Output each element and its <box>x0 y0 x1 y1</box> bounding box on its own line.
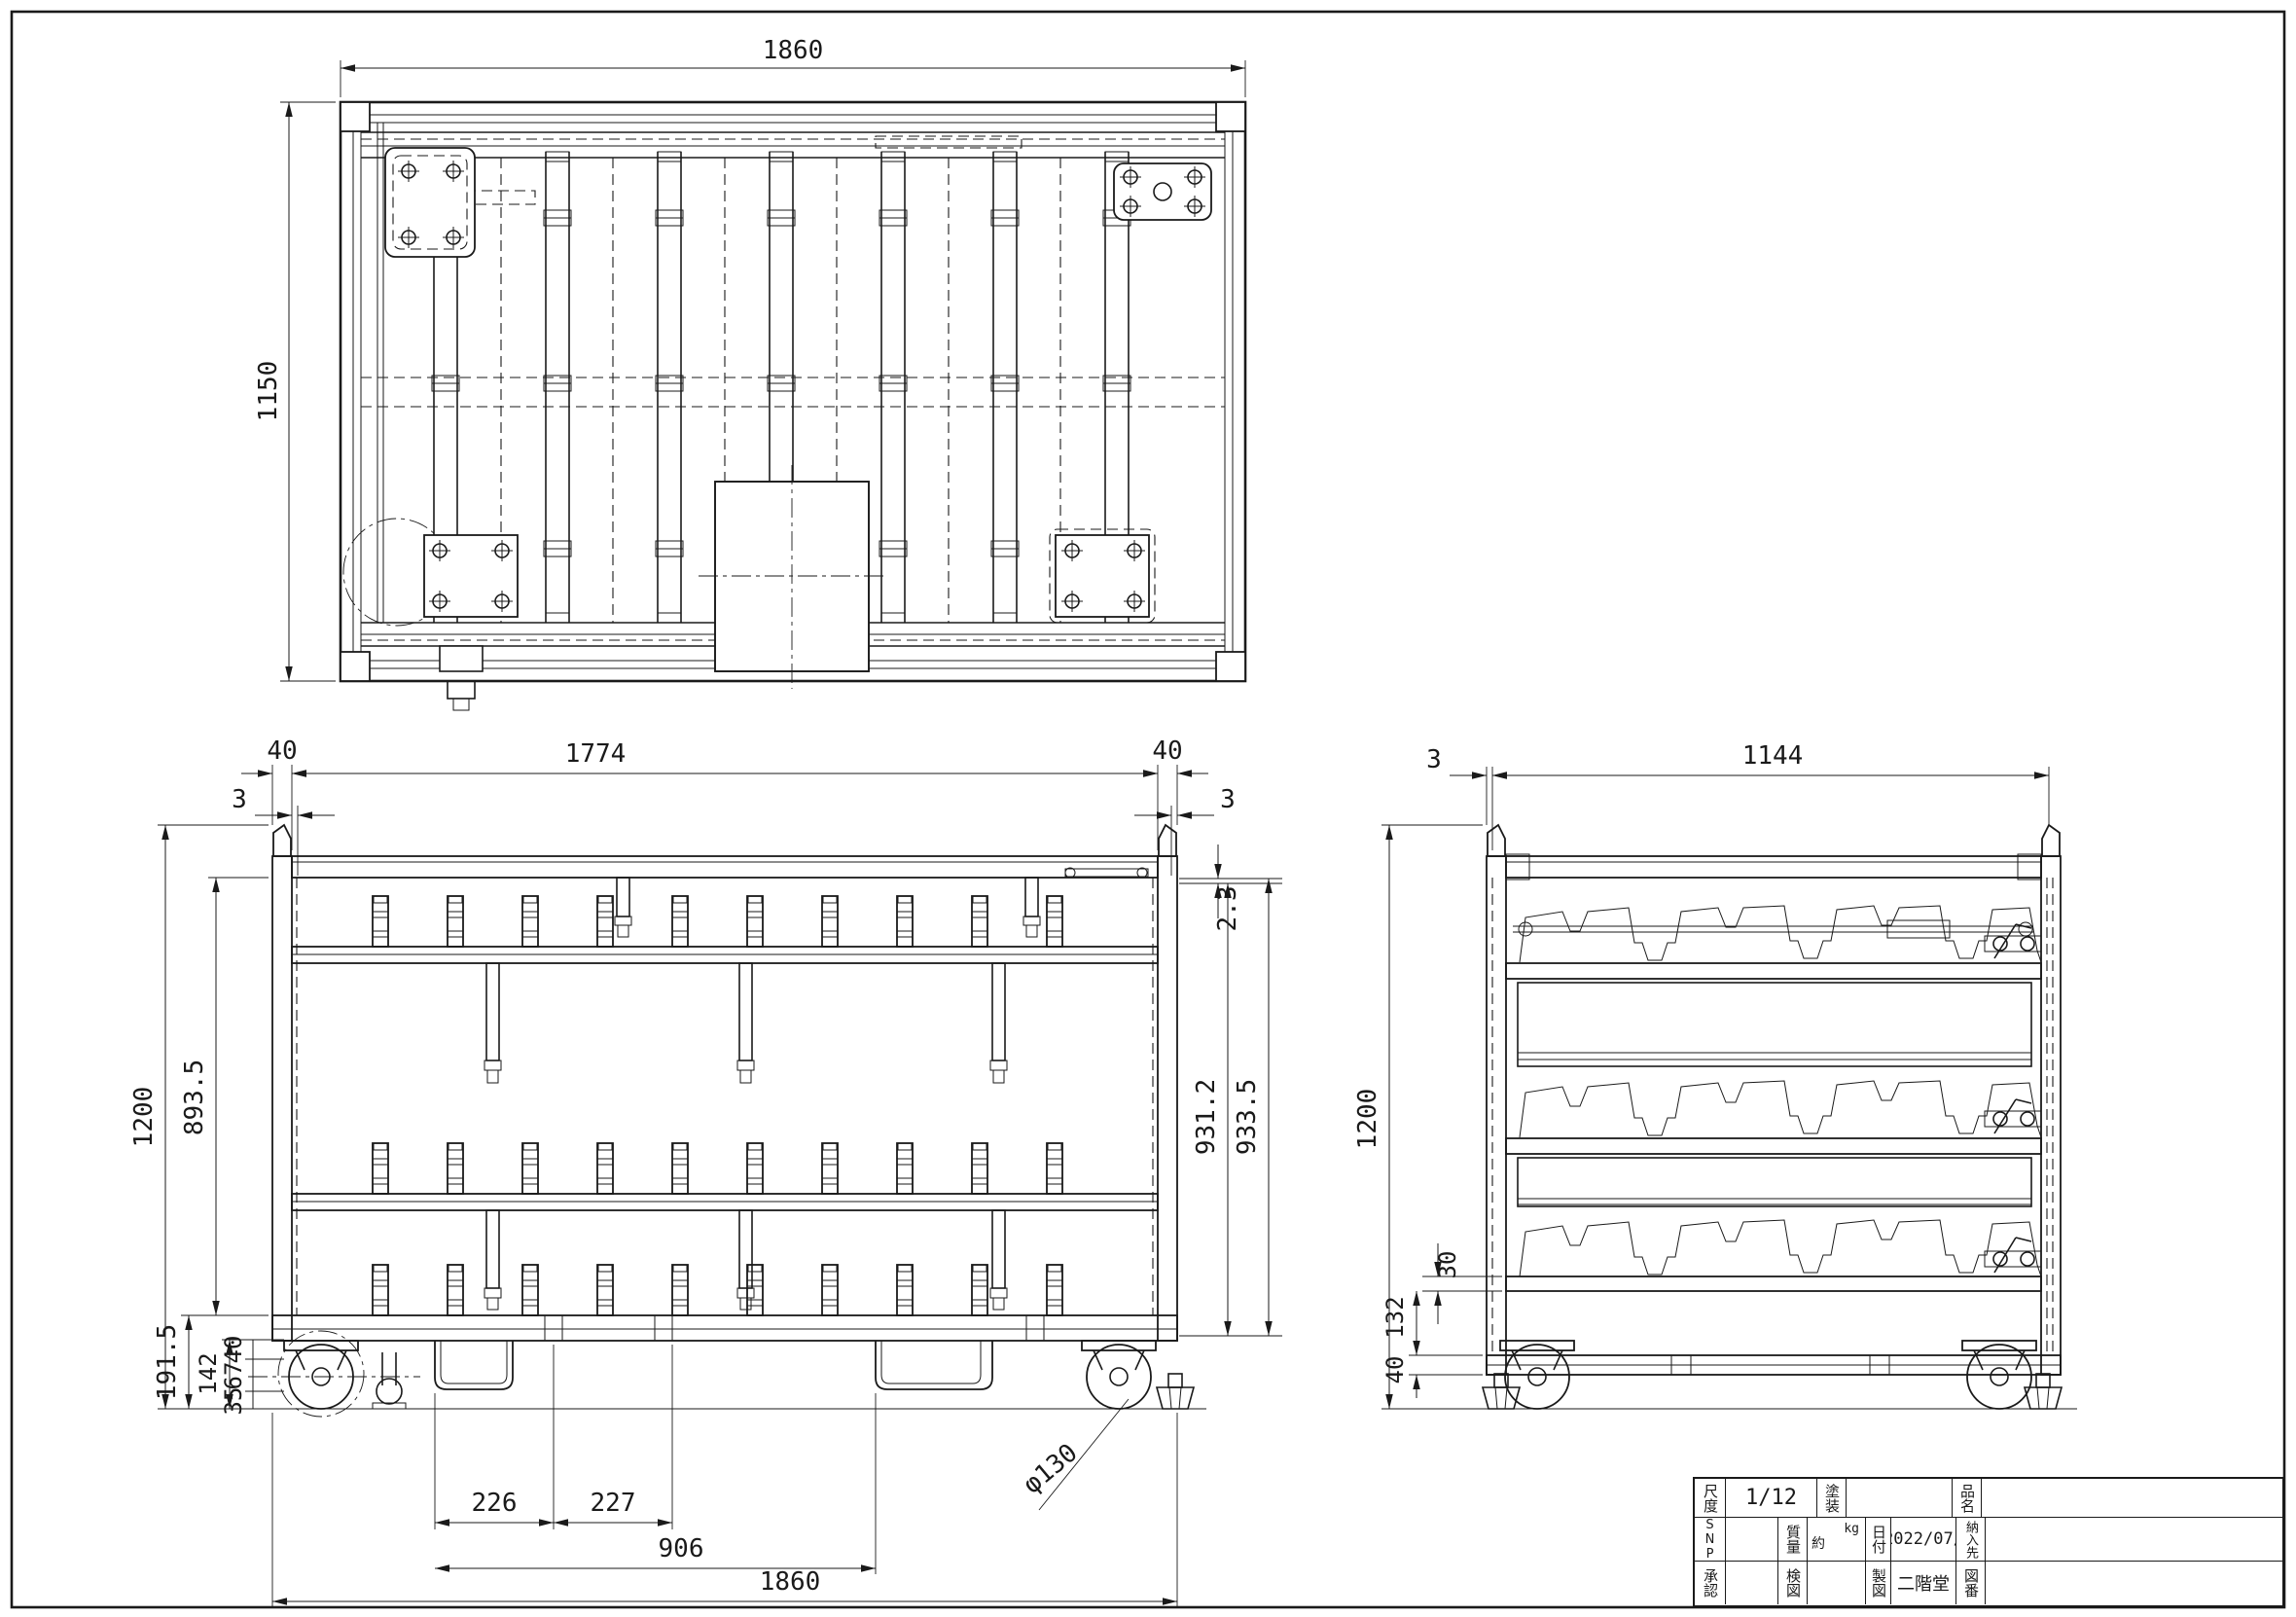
dim-side-wall: 3 <box>1426 745 1529 850</box>
dim-text: 1150 <box>254 361 283 422</box>
approval-label: 承認 <box>1695 1562 1726 1604</box>
draft-label: 製図 <box>1866 1562 1891 1604</box>
title-block-row-3: 承認 検図 製図 二階堂 図番 <box>1695 1562 2282 1604</box>
dim-text: 3 <box>1220 785 1236 814</box>
title-block-row-2: SNP 質量 約 kg 日付 2022/07/ 納入先 <box>1695 1518 2282 1562</box>
dim-side-under-clearance: 132 <box>1381 1291 1483 1355</box>
dim-text: 40 <box>1381 1356 1409 1384</box>
scale-value: 1/12 <box>1726 1479 1817 1518</box>
draft-value: 二階堂 <box>1891 1562 1956 1604</box>
dim-text: 142 <box>195 1352 222 1394</box>
dim-text: 1860 <box>760 1567 821 1597</box>
dim-front-inner-width: 1774 <box>292 739 1158 850</box>
dim-front-pitch-left: 226 <box>435 1345 554 1529</box>
latch-bracket-3 <box>1985 1238 2041 1273</box>
dim-front-post-left: 40 <box>241 737 323 850</box>
customer-label: 納入先 <box>1956 1518 1986 1562</box>
approval-value <box>1726 1562 1778 1604</box>
caster-plate-top-left <box>385 148 475 257</box>
dim-text: 3 <box>1426 745 1442 774</box>
dim-front-top-gap: 2.3 <box>1179 844 1282 931</box>
product-label: 品名 <box>1953 1479 1982 1518</box>
dim-text: 226 <box>472 1489 518 1518</box>
fork-pocket-left <box>435 1341 513 1389</box>
dim-text: 191.5 <box>153 1324 182 1400</box>
dim-top-height: 1150 <box>254 102 336 681</box>
dim-front-post-right: 40 <box>1127 737 1208 825</box>
drawing-no-label: 図番 <box>1956 1562 1986 1604</box>
drawing-canvas: 1860 1150 <box>0 0 2296 1617</box>
drawing-no-value <box>1986 1562 2282 1604</box>
title-block: 尺度 1/12 塗装 品名 SNP 質量 約 kg 日付 2022/07/ 納入… <box>1693 1477 2284 1607</box>
dim-text: 906 <box>659 1534 704 1563</box>
dim-text: 1144 <box>1742 741 1804 771</box>
dim-side-width: 1144 <box>1492 741 2049 825</box>
dim-text: 132 <box>1381 1296 1409 1338</box>
dim-text: 1860 <box>763 36 824 65</box>
dim-text: φ130 <box>1018 1438 1083 1499</box>
latch-bracket-2 <box>1985 1099 2041 1133</box>
caster-plate-bottom-right <box>1050 529 1155 623</box>
dim-text: 40 <box>1152 737 1182 766</box>
dim-side-overall-height: 1200 <box>1353 825 1483 1409</box>
paint-value <box>1847 1479 1953 1518</box>
mass-approx: 約 <box>1812 1533 1825 1553</box>
paint-label: 塗装 <box>1817 1479 1847 1518</box>
dim-side-rail-height: 30 <box>1422 1243 1502 1324</box>
dim-text: 67 <box>220 1362 247 1390</box>
dim-front-segments: 40 67 35 <box>220 1336 284 1416</box>
dim-text: 3 <box>232 785 247 814</box>
check-label: 検図 <box>1778 1562 1808 1604</box>
dim-text: 227 <box>591 1489 636 1518</box>
foot-side-right <box>2025 1374 2062 1409</box>
dim-text: 1200 <box>1353 1089 1382 1150</box>
dim-top-width: 1860 <box>341 36 1245 97</box>
snp-label: SNP <box>1695 1518 1726 1562</box>
dim-text: 893.5 <box>180 1060 209 1135</box>
mass-value: 約 kg <box>1808 1518 1866 1562</box>
title-block-row-1: 尺度 1/12 塗装 品名 <box>1695 1479 2282 1518</box>
dim-text: 30 <box>1434 1251 1461 1279</box>
product-value <box>1982 1479 2282 1518</box>
dim-front-body-height: 931.2 <box>1179 883 1282 1336</box>
check-value <box>1808 1562 1866 1604</box>
dim-front-body-height-outer: 933.5 <box>1233 879 1269 1336</box>
dim-text: 1200 <box>129 1087 159 1148</box>
fork-pocket-right <box>876 1341 992 1389</box>
dim-text: 933.5 <box>1233 1079 1262 1155</box>
snp-value <box>1726 1518 1778 1562</box>
dim-front-inner-height: 893.5 <box>180 878 269 1315</box>
foot-side-left <box>1483 1374 1520 1409</box>
checker-plate <box>699 465 885 689</box>
dim-text: 1774 <box>565 739 627 769</box>
mass-label: 質量 <box>1778 1518 1808 1562</box>
dim-front-pitch-right: 227 <box>554 1345 672 1529</box>
caster-plate-top-right <box>1114 163 1211 220</box>
dim-front-overall-width: 1860 <box>272 1413 1177 1607</box>
front-view: 40 1774 40 3 3 1200 <box>129 737 1282 1607</box>
side-view: 3 1144 1200 30 132 40 <box>1353 741 2077 1409</box>
foot-front-right <box>1157 1374 1194 1409</box>
date-value: 2022/07/ <box>1891 1518 1956 1562</box>
dim-text: 35 <box>220 1387 247 1416</box>
dim-front-pocket-span: 906 <box>435 1393 876 1574</box>
date-label: 日付 <box>1866 1518 1891 1562</box>
scale-label: 尺度 <box>1695 1479 1726 1518</box>
dim-side-frame-height: 40 <box>1381 1356 1483 1398</box>
drawing-sheet: 1860 1150 <box>0 0 2296 1617</box>
jack-front-left <box>373 1352 406 1409</box>
mass-unit: kg <box>1844 1522 1859 1536</box>
dim-text: 40 <box>220 1336 247 1364</box>
dim-text: 931.2 <box>1192 1079 1221 1155</box>
top-view: 1860 1150 <box>254 36 1245 710</box>
caster-front-left <box>248 1331 420 1417</box>
dim-front-wheel-dia: φ130 <box>1018 1399 1129 1510</box>
dim-text: 40 <box>267 737 297 766</box>
customer-value <box>1986 1518 2282 1562</box>
